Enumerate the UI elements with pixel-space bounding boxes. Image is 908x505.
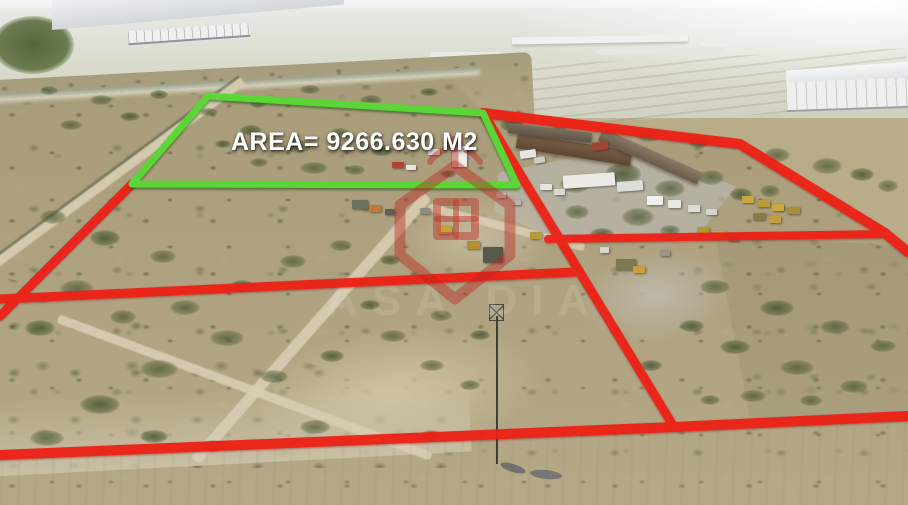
area-label: AREA= 9266.630 M2 xyxy=(231,128,478,157)
red-boundary-main-diagonal xyxy=(483,113,674,427)
red-boundary-bottom xyxy=(0,416,908,455)
parcel-boundary-overlay xyxy=(0,0,908,505)
aerial-photo: ASA DIA AREA= 9 xyxy=(0,0,908,505)
red-boundary-right-divider xyxy=(548,234,886,239)
